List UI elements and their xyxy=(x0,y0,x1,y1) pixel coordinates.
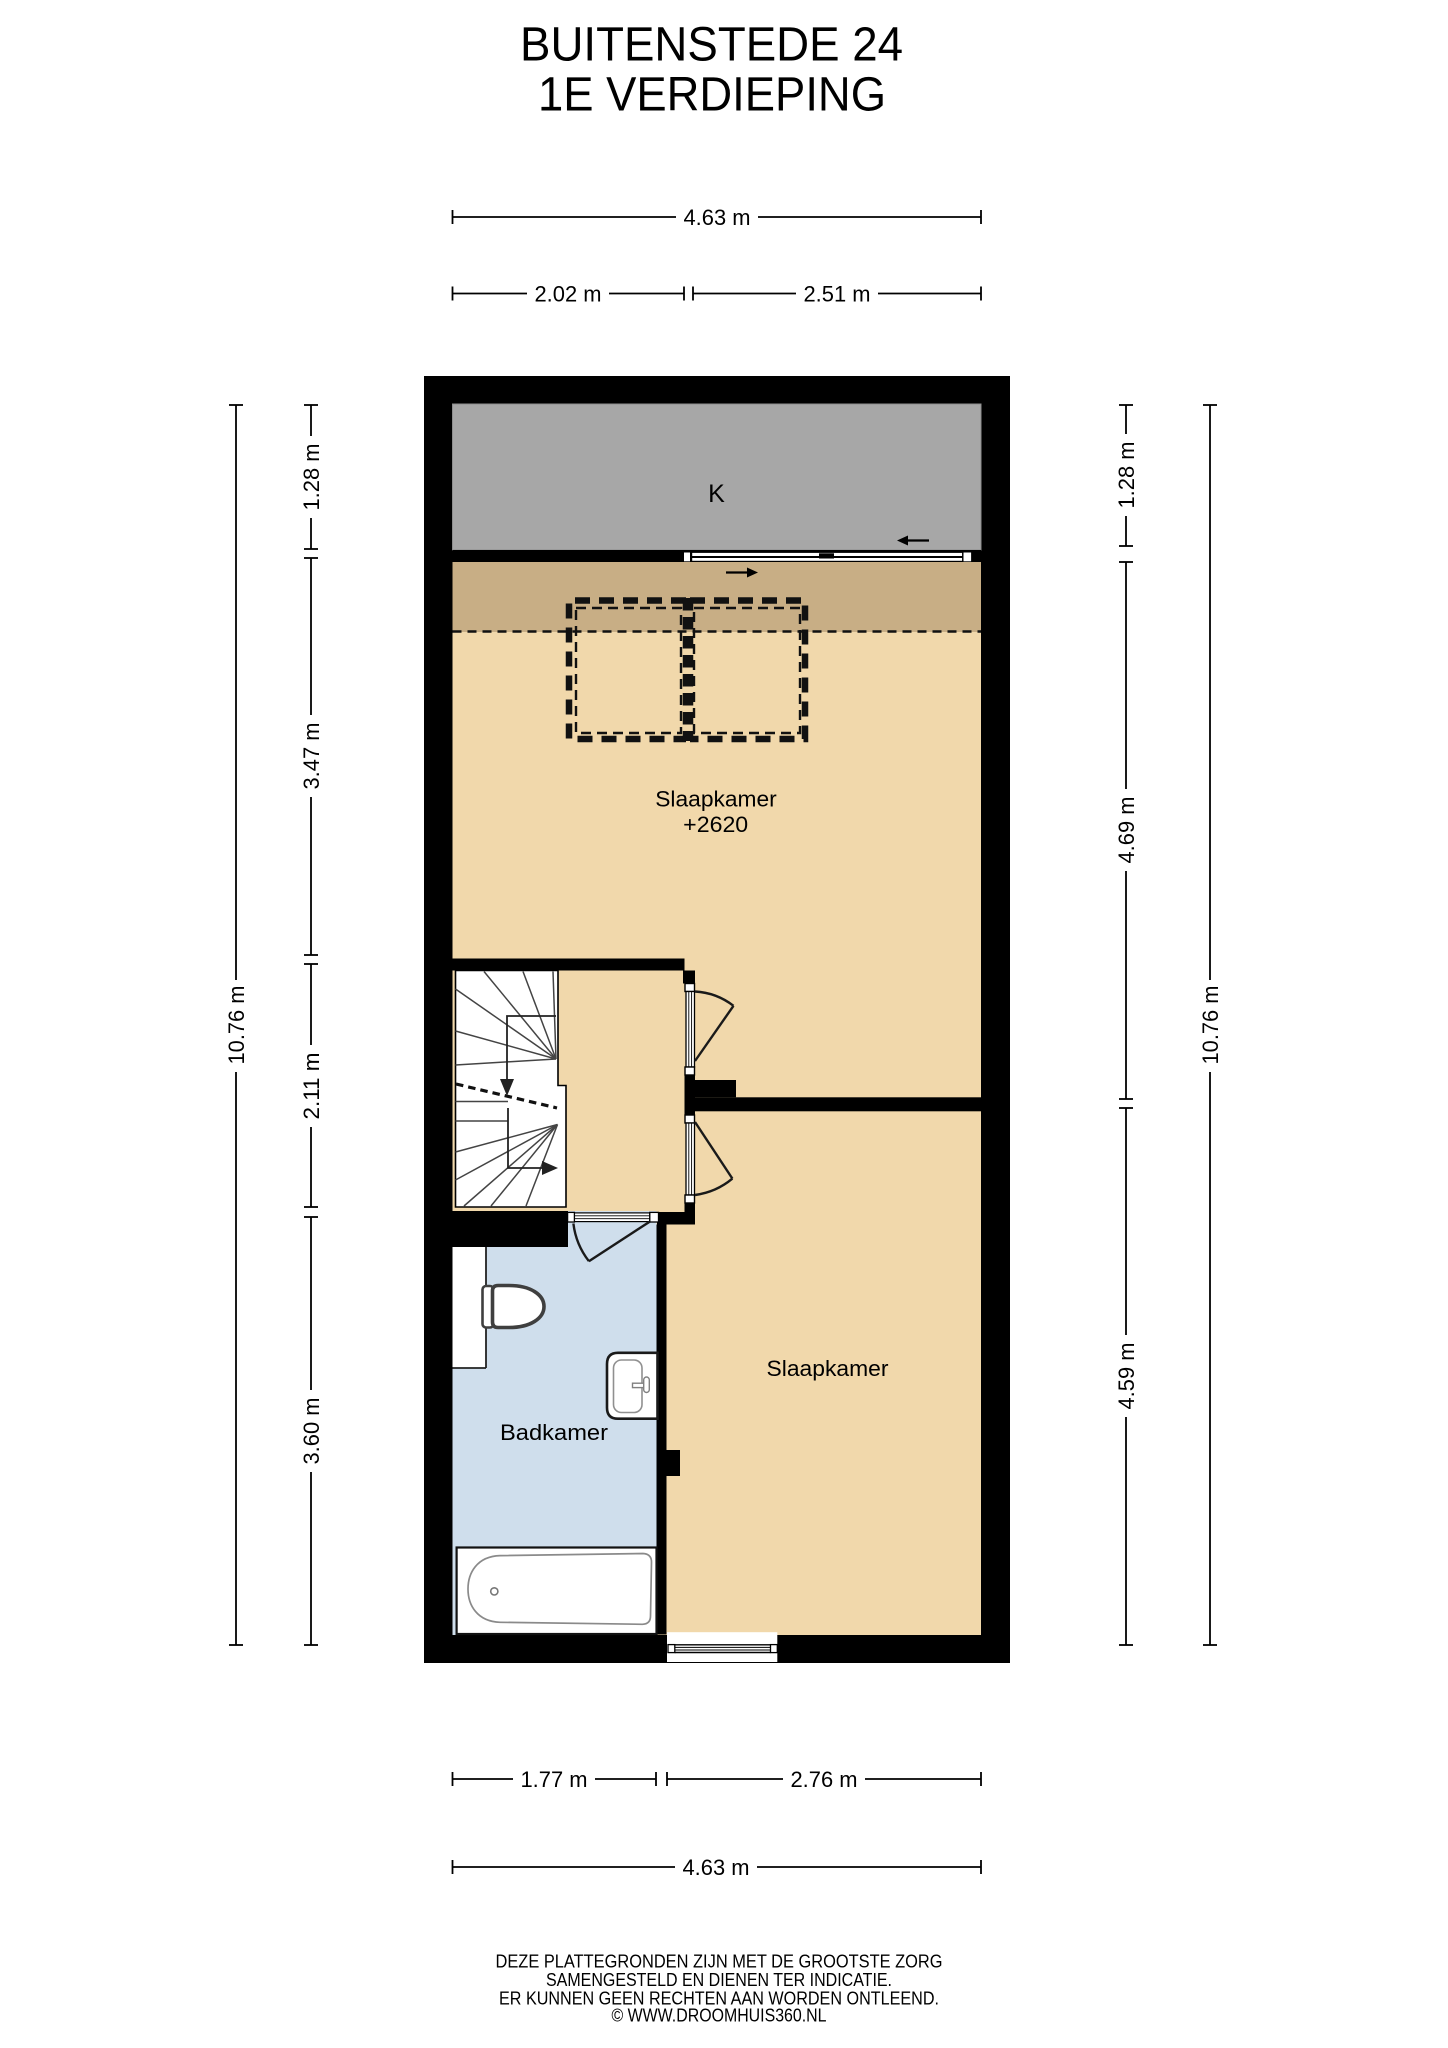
svg-text:1.28 m: 1.28 m xyxy=(299,444,324,511)
svg-text:© WWW.DROOMHUIS360.NL: © WWW.DROOMHUIS360.NL xyxy=(612,2005,827,2026)
svg-text:1.77 m: 1.77 m xyxy=(521,1767,588,1792)
svg-text:4.69 m: 4.69 m xyxy=(1114,797,1139,864)
svg-text:2.11 m: 2.11 m xyxy=(299,1053,324,1120)
svg-text:2.02 m: 2.02 m xyxy=(535,282,602,307)
svg-text:+2620: +2620 xyxy=(683,812,748,837)
svg-text:1.28 m: 1.28 m xyxy=(1114,442,1139,509)
svg-text:BUITENSTEDE 24: BUITENSTEDE 24 xyxy=(520,19,903,72)
svg-text:4.63 m: 4.63 m xyxy=(684,205,751,230)
svg-text:Badkamer: Badkamer xyxy=(500,1420,609,1445)
svg-text:10.76 m: 10.76 m xyxy=(1198,986,1223,1065)
svg-text:4.59 m: 4.59 m xyxy=(1114,1343,1139,1410)
svg-text:1E VERDIEPING: 1E VERDIEPING xyxy=(538,68,886,121)
svg-text:Slaapkamer: Slaapkamer xyxy=(767,1356,890,1381)
svg-text:3.47 m: 3.47 m xyxy=(299,723,324,790)
svg-text:10.76 m: 10.76 m xyxy=(224,986,249,1065)
svg-text:4.63 m: 4.63 m xyxy=(683,1855,750,1880)
svg-text:2.76 m: 2.76 m xyxy=(791,1767,858,1792)
svg-text:2.51 m: 2.51 m xyxy=(804,282,871,307)
svg-text:3.60 m: 3.60 m xyxy=(299,1398,324,1465)
svg-text:K: K xyxy=(708,480,725,508)
svg-text:Slaapkamer: Slaapkamer xyxy=(655,787,777,812)
